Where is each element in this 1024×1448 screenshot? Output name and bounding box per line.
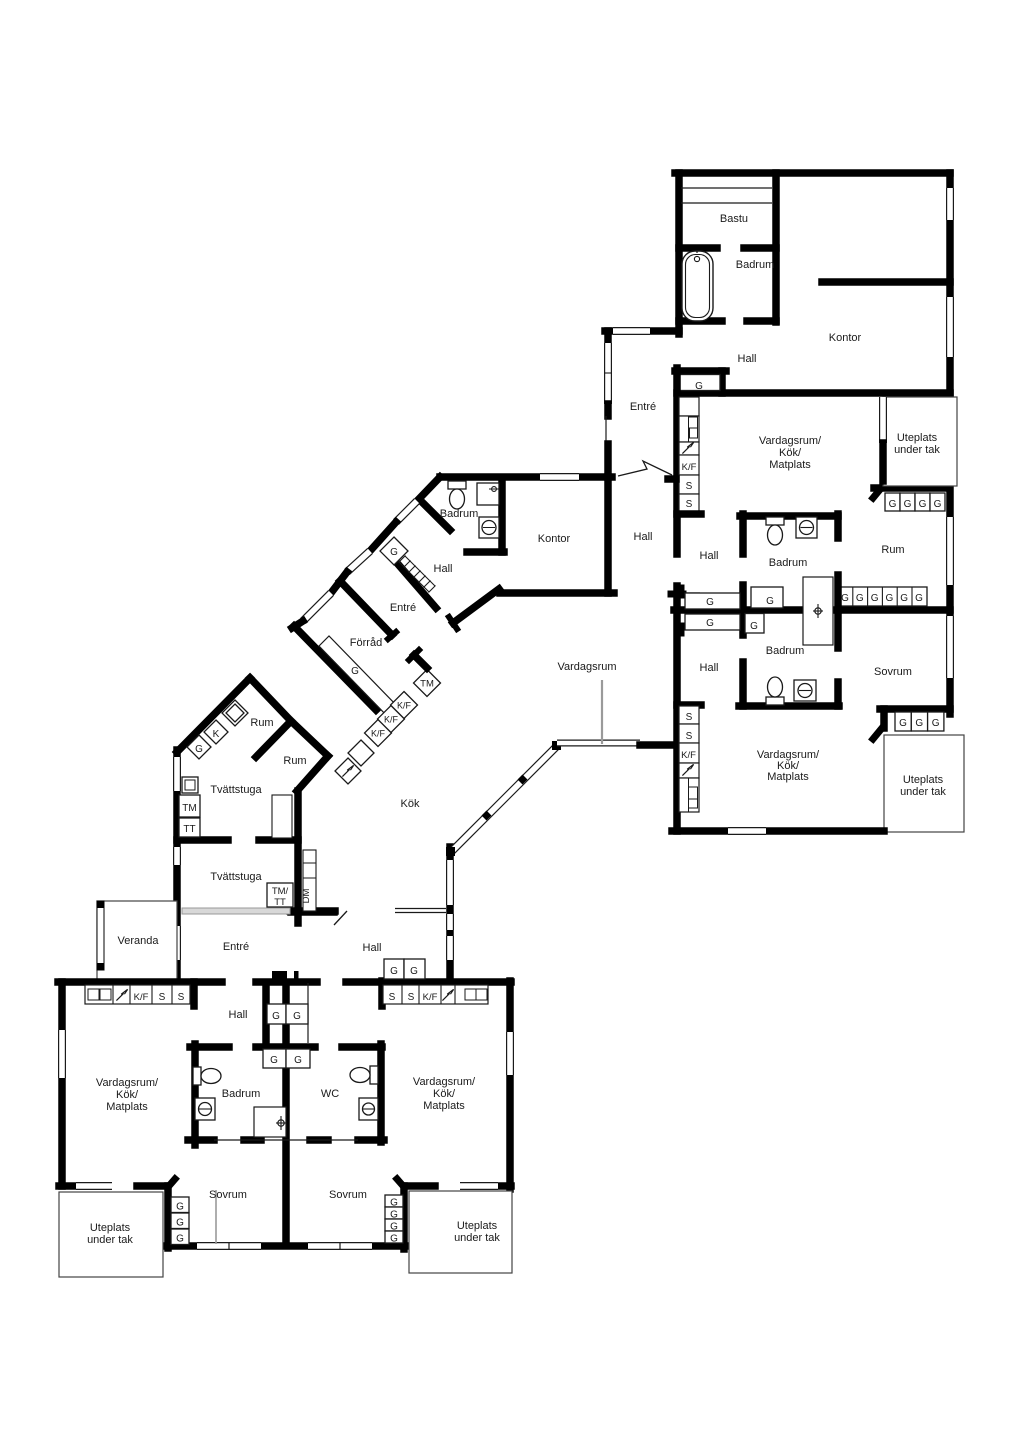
svg-text:Tvättstuga: Tvättstuga	[210, 784, 262, 796]
svg-text:Sovrum: Sovrum	[874, 666, 912, 678]
svg-text:G: G	[915, 593, 923, 604]
svg-text:G: G	[899, 718, 907, 729]
svg-text:Matplats: Matplats	[767, 771, 809, 783]
svg-text:S: S	[686, 481, 693, 492]
svg-text:under tak: under tak	[900, 786, 946, 798]
svg-text:Matplats: Matplats	[769, 459, 811, 471]
svg-text:K/F: K/F	[423, 992, 438, 1003]
svg-text:G: G	[390, 547, 398, 558]
svg-text:K/F: K/F	[397, 701, 412, 711]
svg-text:Tvättstuga: Tvättstuga	[210, 871, 262, 883]
svg-text:G: G	[919, 499, 927, 510]
svg-text:TT: TT	[183, 824, 195, 835]
svg-text:G: G	[904, 499, 912, 510]
svg-text:Vardagsrum/: Vardagsrum/	[413, 1076, 476, 1088]
svg-text:G: G	[900, 593, 908, 604]
svg-text:K/F: K/F	[134, 992, 149, 1003]
svg-text:G: G	[176, 1202, 184, 1213]
svg-text:Badrum: Badrum	[440, 508, 479, 520]
svg-text:Entré: Entré	[223, 941, 249, 953]
svg-text:under tak: under tak	[87, 1234, 133, 1246]
svg-text:TM: TM	[182, 803, 196, 814]
svg-text:Kök: Kök	[401, 798, 420, 810]
svg-text:S: S	[178, 992, 185, 1003]
svg-text:Entré: Entré	[630, 401, 656, 413]
svg-text:G: G	[294, 1055, 302, 1066]
svg-text:TM: TM	[420, 679, 434, 690]
svg-text:Hall: Hall	[700, 662, 719, 674]
svg-text:Badrum: Badrum	[222, 1088, 261, 1100]
svg-text:Badrum: Badrum	[769, 557, 808, 569]
svg-text:DM: DM	[301, 889, 312, 904]
svg-text:S: S	[389, 992, 396, 1003]
svg-text:Hall: Hall	[229, 1009, 248, 1021]
svg-text:G: G	[934, 499, 942, 510]
svg-text:Hall: Hall	[634, 531, 653, 543]
svg-text:S: S	[686, 731, 693, 742]
svg-text:under tak: under tak	[454, 1232, 500, 1244]
svg-text:K/F: K/F	[682, 462, 697, 473]
svg-text:G: G	[410, 966, 418, 977]
svg-text:S: S	[686, 499, 693, 510]
svg-text:Rum: Rum	[250, 717, 273, 729]
svg-text:Kontor: Kontor	[829, 332, 862, 344]
svg-text:Uteplats: Uteplats	[90, 1222, 131, 1234]
svg-text:G: G	[390, 966, 398, 977]
svg-text:G: G	[932, 718, 940, 729]
svg-text:G: G	[915, 718, 923, 729]
svg-text:Bastu: Bastu	[720, 213, 748, 225]
svg-text:G: G	[856, 593, 864, 604]
svg-text:Sovrum: Sovrum	[209, 1189, 247, 1201]
svg-text:G: G	[889, 499, 897, 510]
svg-text:Hall: Hall	[363, 942, 382, 954]
svg-text:Matplats: Matplats	[106, 1101, 148, 1113]
svg-text:Förråd: Förråd	[350, 637, 382, 649]
svg-text:G: G	[351, 666, 359, 677]
svg-text:G: G	[390, 1234, 398, 1245]
svg-text:Kök/: Kök/	[433, 1088, 456, 1100]
svg-text:Hall: Hall	[700, 550, 719, 562]
svg-text:Vardagsrum: Vardagsrum	[557, 661, 616, 673]
svg-text:Uteplats: Uteplats	[903, 774, 944, 786]
svg-text:TT: TT	[274, 897, 286, 908]
svg-text:G: G	[706, 597, 714, 608]
svg-text:G: G	[886, 593, 894, 604]
svg-text:G: G	[293, 1011, 301, 1022]
svg-text:K/F: K/F	[371, 729, 386, 739]
svg-text:G: G	[750, 621, 758, 632]
svg-text:K/F: K/F	[681, 750, 696, 761]
svg-text:S: S	[408, 992, 415, 1003]
svg-text:Sovrum: Sovrum	[329, 1189, 367, 1201]
svg-text:G: G	[176, 1218, 184, 1229]
svg-text:TM/: TM/	[272, 886, 289, 897]
svg-text:G: G	[871, 593, 879, 604]
svg-text:S: S	[159, 992, 166, 1003]
svg-text:Kök/: Kök/	[116, 1089, 139, 1101]
svg-text:Kök/: Kök/	[779, 447, 802, 459]
svg-text:Veranda: Veranda	[118, 935, 160, 947]
svg-text:G: G	[695, 381, 703, 392]
svg-text:G: G	[841, 593, 849, 604]
svg-text:Badrum: Badrum	[766, 645, 805, 657]
svg-text:G: G	[706, 618, 714, 629]
svg-text:G: G	[195, 744, 203, 755]
svg-text:Vardagsrum/: Vardagsrum/	[96, 1077, 159, 1089]
svg-text:G: G	[766, 596, 774, 607]
svg-text:G: G	[270, 1055, 278, 1066]
svg-text:Rum: Rum	[283, 755, 306, 767]
svg-text:S: S	[686, 712, 693, 723]
svg-text:Hall: Hall	[738, 353, 757, 365]
svg-text:G: G	[272, 1011, 280, 1022]
svg-text:Hall: Hall	[434, 563, 453, 575]
svg-text:Rum: Rum	[881, 544, 904, 556]
svg-text:Vardagsrum/: Vardagsrum/	[759, 435, 822, 447]
svg-text:K: K	[213, 729, 220, 740]
svg-text:Kontor: Kontor	[538, 533, 571, 545]
svg-text:K/F: K/F	[384, 715, 399, 725]
svg-text:G: G	[176, 1234, 184, 1245]
svg-text:WC: WC	[321, 1088, 339, 1100]
svg-text:Matplats: Matplats	[423, 1100, 465, 1112]
svg-text:Uteplats: Uteplats	[457, 1220, 498, 1232]
svg-text:Badrum: Badrum	[736, 259, 775, 271]
svg-text:Entré: Entré	[390, 602, 416, 614]
svg-text:Uteplats: Uteplats	[897, 432, 938, 444]
svg-text:under tak: under tak	[894, 444, 940, 456]
